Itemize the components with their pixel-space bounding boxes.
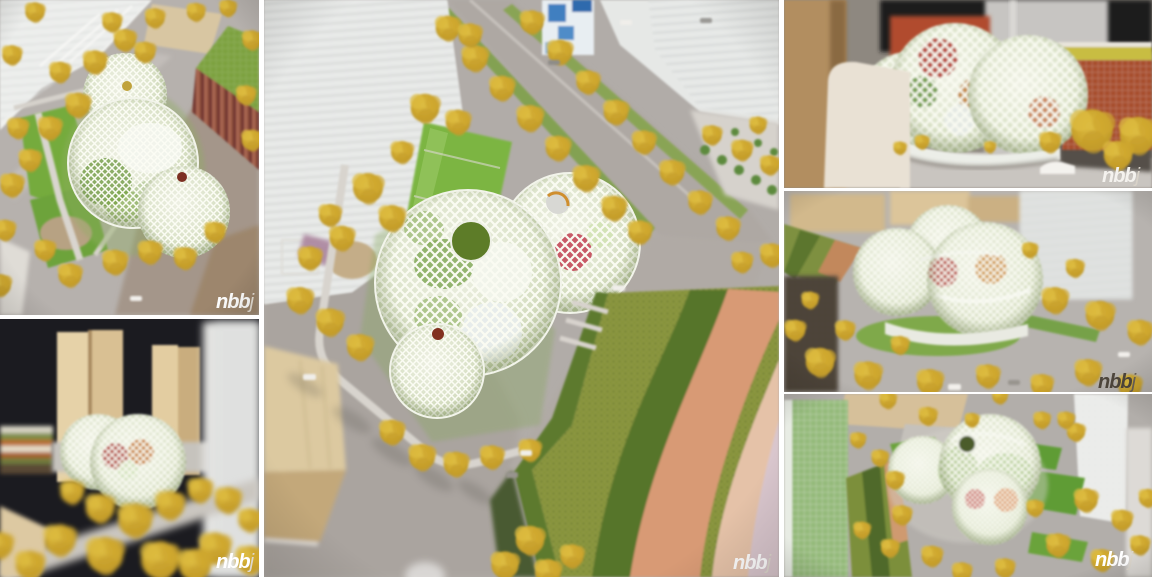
svg-text:nbbj: nbbj xyxy=(1102,165,1141,187)
svg-text:nbbj: nbbj xyxy=(216,551,255,573)
